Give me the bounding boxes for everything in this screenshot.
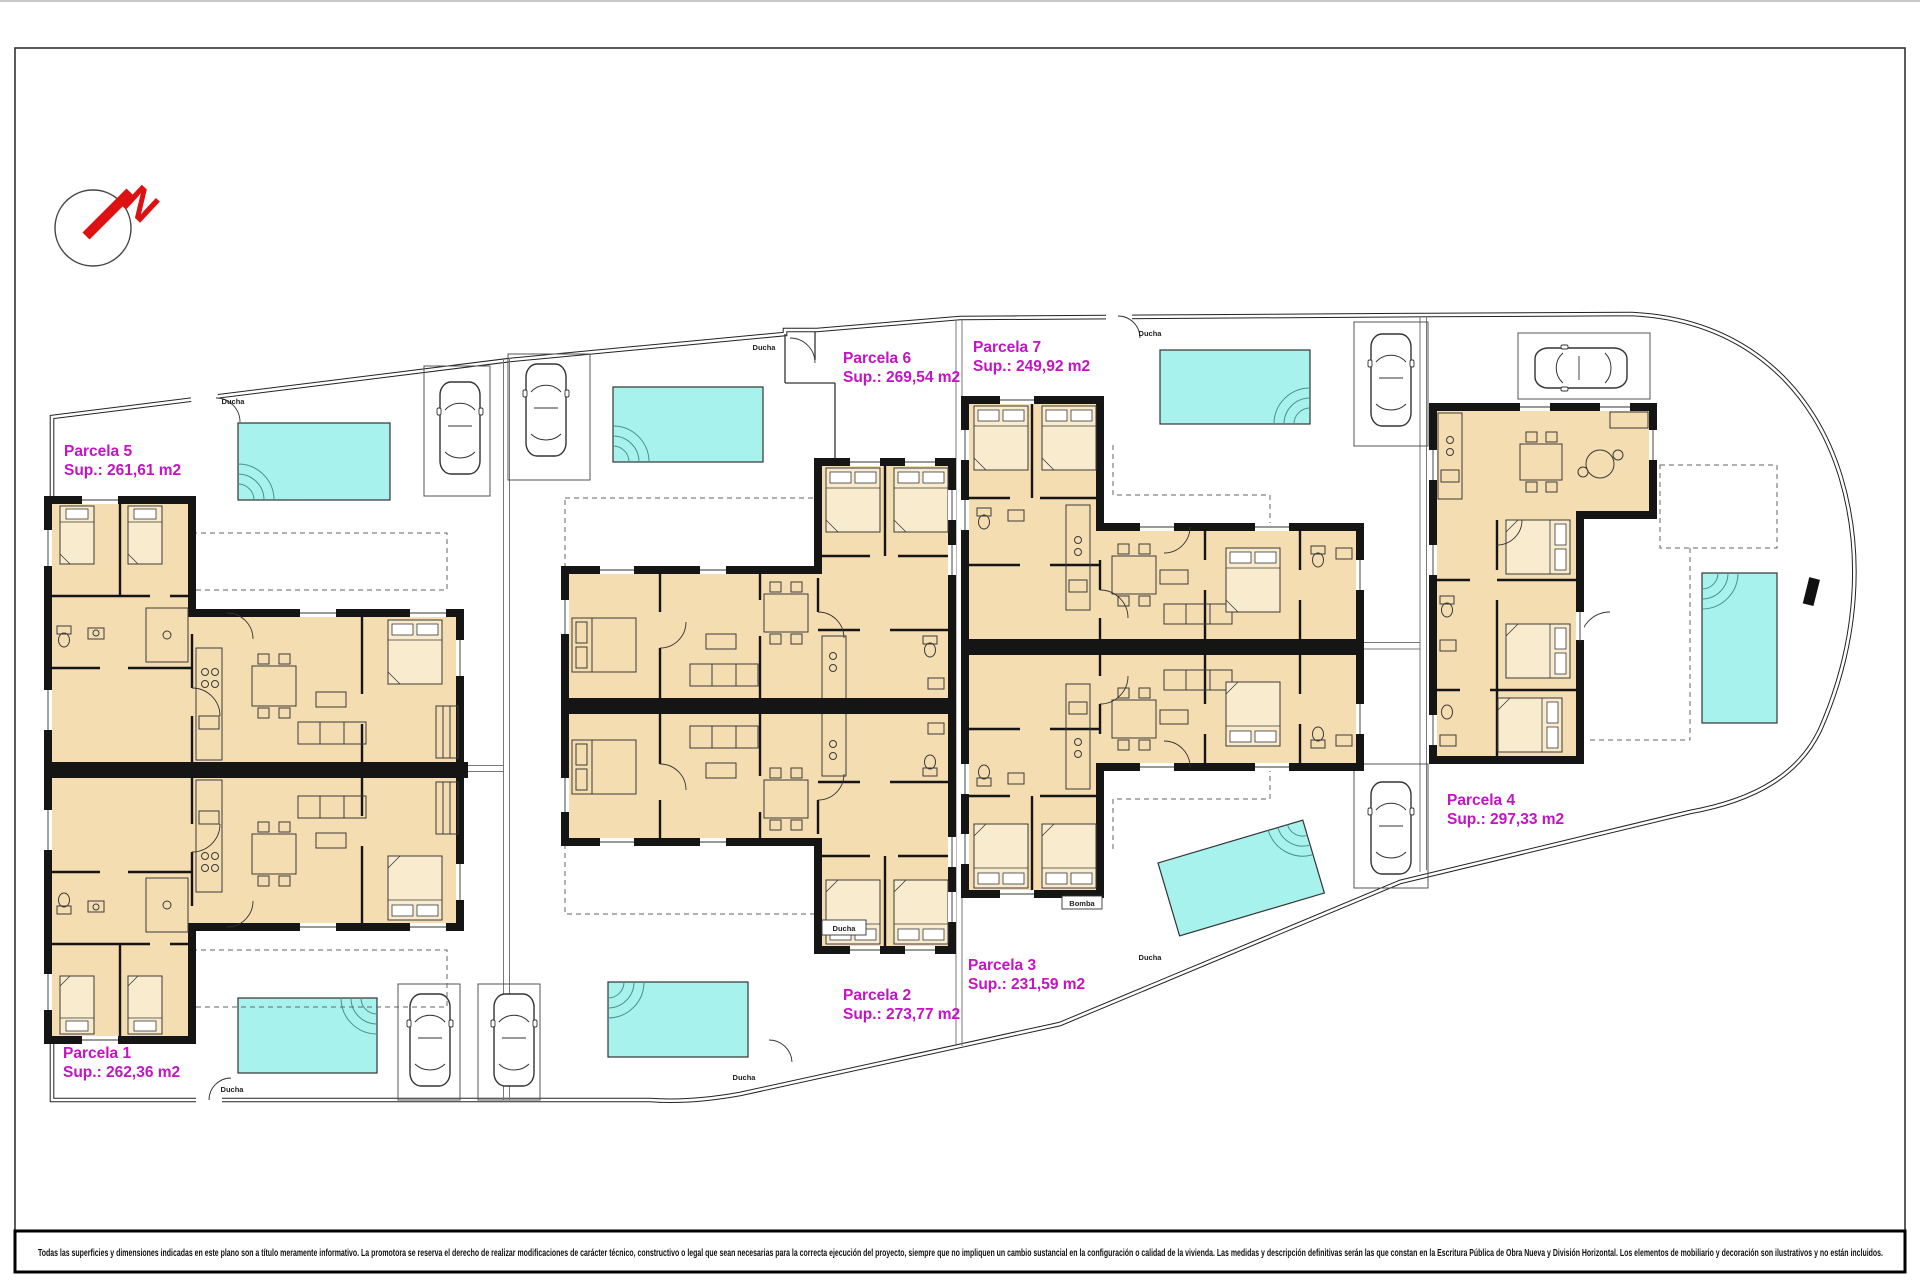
- ducha-label-6: Ducha: [1139, 953, 1163, 962]
- plan-page: N: [0, 0, 1920, 1280]
- svg-text:Parcela 3: Parcela 3: [968, 957, 1036, 974]
- label-parcel-4: Parcela 4 Sup.: 297,33 m2: [1447, 792, 1564, 828]
- disclaimer-bar: Todas las superficies y dimensiones indi…: [15, 1231, 1905, 1272]
- party-wall-center-duplex: [561, 698, 956, 714]
- north-letter: N: [114, 176, 168, 231]
- car-parcel6: [523, 364, 569, 456]
- building-duplex-parcels-6-2: [561, 458, 956, 954]
- party-wall-right-duplex: [961, 639, 1364, 655]
- label-parcel-7: Parcela 7 Sup.: 249,92 m2: [973, 339, 1090, 375]
- svg-text:Sup.: 273,77 m2: Sup.: 273,77 m2: [843, 1006, 960, 1023]
- ducha-label-1: Ducha: [222, 397, 246, 406]
- disclaimer-text: Todas las superficies y dimensiones indi…: [38, 1247, 1883, 1259]
- svg-text:Parcela 6: Parcela 6: [843, 350, 911, 367]
- boundary-gate-marker: [1803, 577, 1820, 606]
- svg-text:Parcela 2: Parcela 2: [843, 987, 911, 1004]
- svg-text:Parcela 5: Parcela 5: [64, 443, 132, 460]
- label-parcel-3: Parcela 3 Sup.: 231,59 m2: [968, 957, 1085, 993]
- pool-parcel6: [613, 387, 763, 462]
- pool-parcel1: [238, 998, 377, 1073]
- ducha-label-5: Ducha: [221, 1085, 245, 1094]
- car-parcel2: [491, 994, 537, 1086]
- ducha-label-2: Ducha: [753, 343, 777, 352]
- svg-text:Sup.: 262,36 m2: Sup.: 262,36 m2: [63, 1064, 180, 1081]
- car-parcel5: [437, 382, 483, 474]
- building-duplex-parcels-5-1: [44, 496, 468, 1044]
- car-parcel7: [1368, 334, 1414, 426]
- svg-text:Parcela 1: Parcela 1: [63, 1045, 131, 1062]
- svg-text:Sup.: 231,59 m2: Sup.: 231,59 m2: [968, 976, 1085, 993]
- pool-parcel4: [1702, 573, 1777, 723]
- label-parcel-2: Parcela 2 Sup.: 273,77 m2: [843, 987, 960, 1023]
- ducha-box-label: Ducha: [833, 924, 857, 933]
- entry-court-walls: [785, 332, 835, 462]
- svg-text:Parcela 4: Parcela 4: [1447, 792, 1515, 809]
- bomba-box-label: Bomba: [1069, 899, 1095, 908]
- pool-parcel7: [1160, 350, 1310, 424]
- car-parcel1: [407, 994, 453, 1086]
- north-arrow: N: [55, 176, 168, 266]
- svg-text:Sup.: 269,54 m2: Sup.: 269,54 m2: [843, 369, 960, 386]
- label-parcel-1: Parcela 1 Sup.: 262,36 m2: [63, 1045, 180, 1081]
- car-parcel3: [1368, 782, 1414, 874]
- pool-parcel5: [238, 423, 390, 500]
- label-parcel-6: Parcela 6 Sup.: 269,54 m2: [843, 350, 960, 386]
- svg-text:Parcela 7: Parcela 7: [973, 339, 1041, 356]
- party-wall-left-duplex: [44, 762, 468, 778]
- svg-text:Sup.: 297,33 m2: Sup.: 297,33 m2: [1447, 811, 1564, 828]
- gate-door-arc: [790, 338, 815, 363]
- ducha-label-4: Ducha: [733, 1073, 757, 1082]
- svg-text:Sup.: 261,61 m2: Sup.: 261,61 m2: [64, 462, 181, 479]
- svg-text:Sup.: 249,92 m2: Sup.: 249,92 m2: [973, 358, 1090, 375]
- ducha-label-3: Ducha: [1139, 329, 1163, 338]
- car-parcel4: [1535, 345, 1627, 391]
- page-top-edge: [0, 0, 1920, 2]
- pool-parcel3: [1158, 820, 1324, 936]
- pool-parcel2: [608, 982, 748, 1057]
- building-house-parcel-4: [1429, 403, 1657, 760]
- site-plan-drawing: N: [0, 0, 1920, 1280]
- label-parcel-5: Parcela 5 Sup.: 261,61 m2: [64, 443, 181, 479]
